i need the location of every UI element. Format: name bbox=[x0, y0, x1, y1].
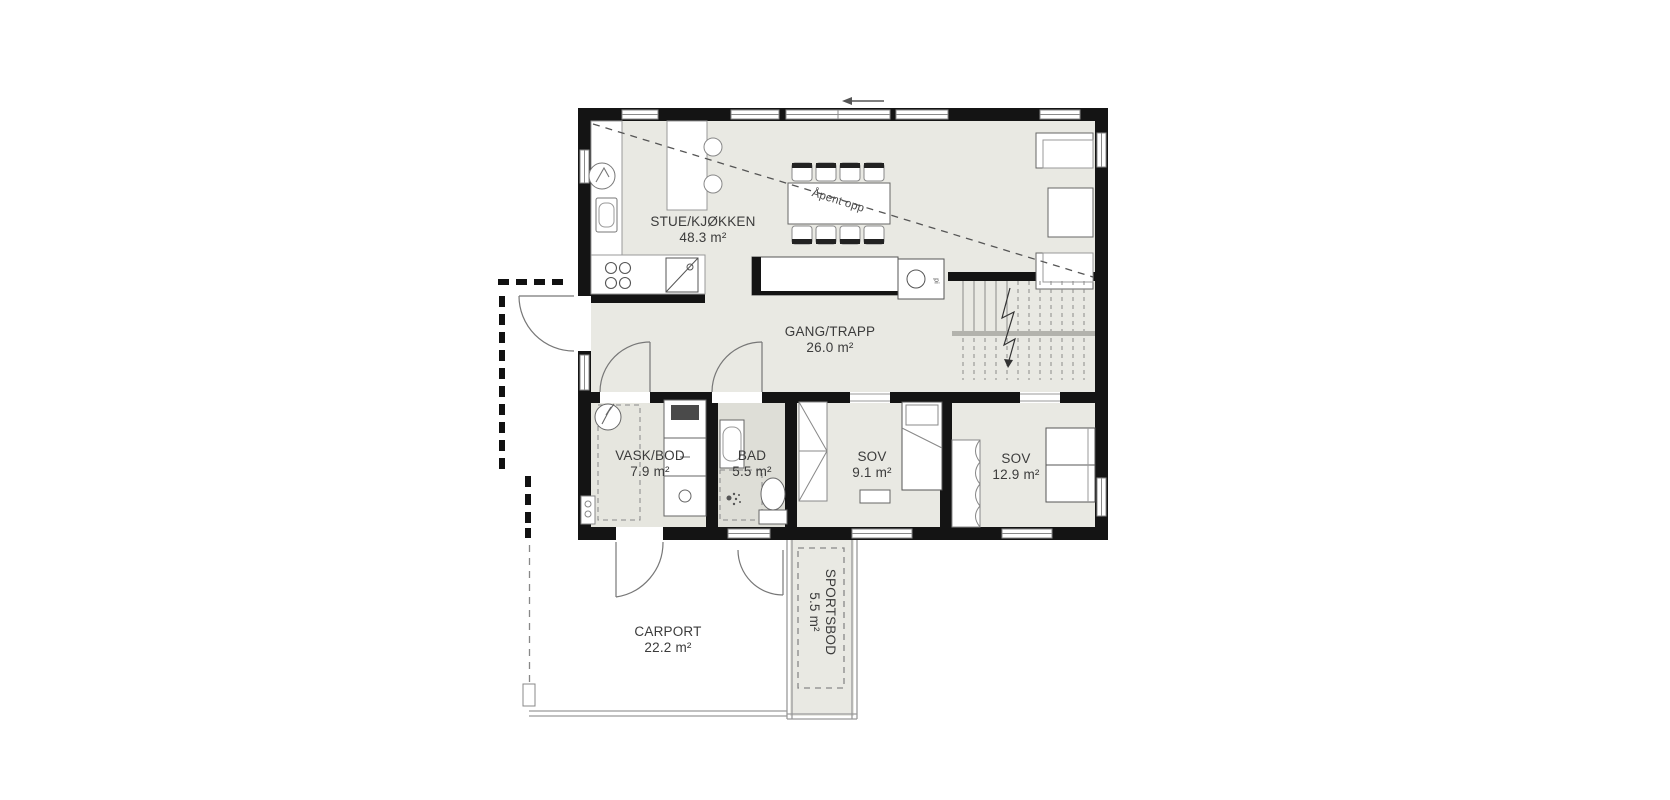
floor-plan-svg bbox=[0, 0, 1670, 800]
wardrobe bbox=[799, 402, 827, 501]
room-label-vask: VASK/BOD 7.9 m² bbox=[615, 448, 685, 480]
room-area: 26.0 m² bbox=[785, 340, 876, 356]
floor-plan-page: STUE/KJØKKEN 48.3 m² GANG/TRAPP 26.0 m² … bbox=[0, 0, 1670, 800]
double-bed bbox=[1046, 428, 1095, 502]
room-label-sov2: SOV 12.9 m² bbox=[992, 451, 1039, 483]
room-label-sov1: SOV 9.1 m² bbox=[852, 449, 891, 481]
stair-rail bbox=[952, 331, 1095, 336]
sofa bbox=[1036, 133, 1093, 168]
room-name: SPORTSBOD bbox=[822, 569, 838, 655]
kitchen-peninsula bbox=[667, 121, 707, 210]
room-label-carport: CARPORT 22.2 m² bbox=[634, 624, 701, 656]
bench bbox=[860, 490, 890, 503]
room-area: 22.2 m² bbox=[634, 640, 701, 656]
annotation-text: pi bbox=[933, 278, 940, 284]
kitchen-island bbox=[752, 257, 898, 295]
prep-sink-icon bbox=[666, 258, 698, 292]
room-name: STUE/KJØKKEN bbox=[650, 214, 755, 230]
room-label-gang: GANG/TRAPP 26.0 m² bbox=[785, 324, 876, 356]
room-area: 5.5 m² bbox=[732, 464, 771, 480]
bar-stool bbox=[704, 175, 722, 193]
room-name: SOV bbox=[852, 449, 891, 465]
room-name: VASK/BOD bbox=[615, 448, 685, 464]
room-area: 12.9 m² bbox=[992, 467, 1039, 483]
room-label-stue: STUE/KJØKKEN 48.3 m² bbox=[650, 214, 755, 246]
water-point-icon bbox=[589, 163, 615, 189]
room-area: 48.3 m² bbox=[650, 230, 755, 246]
electrical-panel-icon bbox=[595, 404, 621, 430]
fireplace-label: pi bbox=[933, 278, 940, 284]
room-area: 7.9 m² bbox=[615, 464, 685, 480]
single-bed bbox=[902, 402, 942, 490]
room-name: BAD bbox=[732, 448, 771, 464]
room-name: GANG/TRAPP bbox=[785, 324, 876, 340]
room-name: CARPORT bbox=[634, 624, 701, 640]
section-line bbox=[498, 279, 563, 538]
sliding-wardrobe bbox=[952, 440, 980, 527]
bar-stool bbox=[704, 138, 722, 156]
sliding-door-arrow-icon bbox=[842, 97, 884, 105]
room-label-sportsbod: SPORTSBOD 5.5 m² bbox=[806, 569, 838, 655]
carport-post bbox=[523, 684, 535, 706]
toilet-icon bbox=[759, 478, 787, 524]
room-label-bad: BAD 5.5 m² bbox=[732, 448, 771, 480]
room-area: 9.1 m² bbox=[852, 465, 891, 481]
room-name: SOV bbox=[992, 451, 1039, 467]
wall-cabinet-icon bbox=[581, 496, 595, 524]
coffee-table bbox=[1048, 188, 1093, 237]
room-area: 5.5 m² bbox=[806, 569, 822, 655]
